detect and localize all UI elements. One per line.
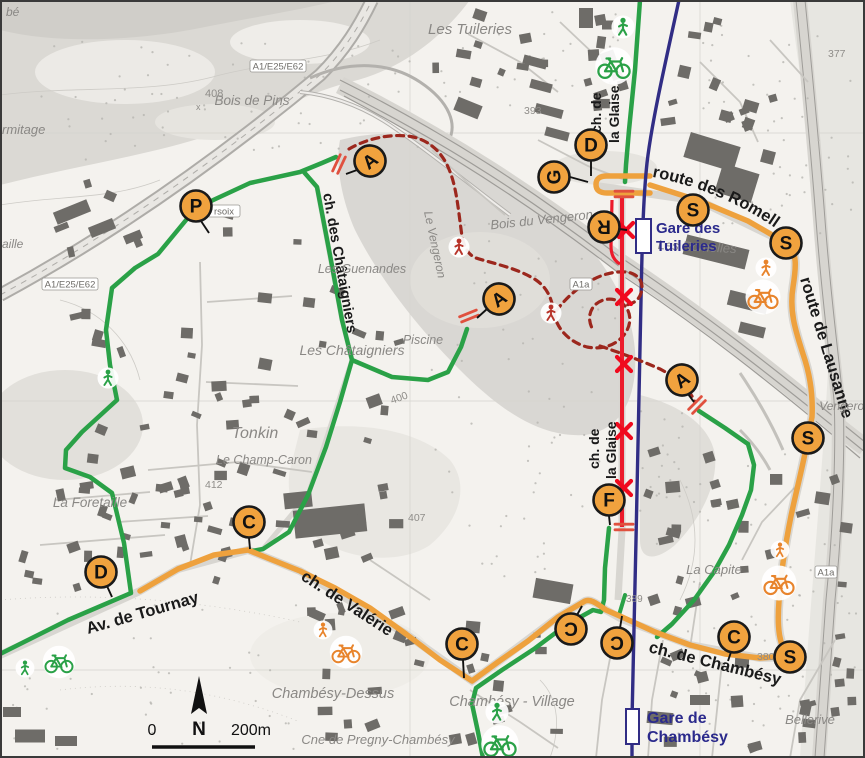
tree-dot xyxy=(705,692,707,694)
tree-dot xyxy=(503,575,505,577)
tree-dot xyxy=(543,57,545,59)
pedestrian-icon xyxy=(756,258,777,279)
tree-dot xyxy=(562,50,564,52)
building xyxy=(594,14,607,26)
tree-dot xyxy=(850,209,852,211)
tree-dot xyxy=(693,581,695,583)
tree-dot xyxy=(597,308,599,310)
tree-dot xyxy=(849,80,851,82)
tree-dot xyxy=(56,748,58,750)
tree-dot xyxy=(497,86,499,88)
tree-dot xyxy=(163,134,165,136)
tree-dot xyxy=(167,64,169,66)
building xyxy=(550,729,563,734)
map-image: route de LausanneAv. de Tournaych. de Va… xyxy=(0,0,865,758)
building xyxy=(493,680,504,692)
tree-dot xyxy=(543,33,545,35)
tree-dot xyxy=(792,605,794,607)
building xyxy=(375,331,384,341)
tree-dot xyxy=(253,149,255,151)
tree-dot xyxy=(773,120,775,122)
tree-dot xyxy=(656,543,658,545)
place-label: Cne de Pregny-Chambésy xyxy=(301,732,456,747)
pedestrian-icon xyxy=(16,659,35,678)
place-label: Bois de Pins xyxy=(214,93,289,108)
street-label: ch. de xyxy=(586,428,602,469)
tree-dot xyxy=(147,74,149,76)
tree-dot xyxy=(570,494,572,496)
tree-dot xyxy=(269,715,271,717)
elevation-label: 393 xyxy=(524,105,542,117)
tree-dot xyxy=(786,619,788,621)
tree-dot xyxy=(288,722,290,724)
tree-dot xyxy=(612,36,614,38)
tree-dot xyxy=(114,99,116,101)
tree-dot xyxy=(678,468,680,470)
tree-dot xyxy=(468,525,470,527)
tree-dot xyxy=(721,34,723,36)
tree-dot xyxy=(398,91,400,93)
tree-dot xyxy=(292,748,294,750)
tree-dot xyxy=(788,695,790,697)
elevation-label: 407 xyxy=(408,512,426,524)
route-marker-S: S xyxy=(771,228,802,259)
tree-dot xyxy=(285,722,287,724)
tree-dot xyxy=(26,688,28,690)
tree-dot xyxy=(255,700,257,702)
place-label: Vengeron xyxy=(819,399,865,413)
tree-dot xyxy=(132,116,134,118)
tree-dot xyxy=(240,42,242,44)
tree-dot xyxy=(650,486,652,488)
building xyxy=(835,679,845,688)
tree-dot xyxy=(755,499,757,501)
tree-dot xyxy=(779,708,781,710)
tree-dot xyxy=(681,426,683,428)
building xyxy=(155,484,168,493)
tree-dot xyxy=(823,642,825,644)
route-marker-letter: G xyxy=(545,170,566,185)
tree-dot xyxy=(784,453,786,455)
tree-dot xyxy=(766,94,768,96)
elevation-label: 408 xyxy=(205,88,223,100)
tree-dot xyxy=(181,743,183,745)
tree-dot xyxy=(397,55,399,57)
building xyxy=(249,395,259,403)
tree-dot xyxy=(699,511,701,513)
tree-dot xyxy=(777,696,779,698)
building xyxy=(770,474,782,485)
tree-dot xyxy=(537,422,539,424)
tree-dot xyxy=(817,139,819,141)
building xyxy=(389,519,403,528)
tree-dot xyxy=(669,479,671,481)
tree-dot xyxy=(667,453,669,455)
tree-dot xyxy=(801,116,803,118)
scale-zero-label: 0 xyxy=(148,722,157,739)
tree-dot xyxy=(763,724,765,726)
tree-dot xyxy=(91,693,93,695)
tree-dot xyxy=(451,491,453,493)
place-label: Tonkin xyxy=(232,425,279,442)
tree-dot xyxy=(509,104,511,106)
tree-dot xyxy=(828,157,830,159)
tree-dot xyxy=(699,483,701,485)
tree-dot xyxy=(203,104,205,106)
tree-dot xyxy=(544,568,546,570)
tree-dot xyxy=(257,654,259,656)
building xyxy=(665,481,680,494)
road-sign-text: rsoix xyxy=(214,207,234,218)
tree-dot xyxy=(658,493,660,495)
tree-dot xyxy=(708,102,710,104)
tree-dot xyxy=(204,108,206,110)
tree-dot xyxy=(642,467,644,469)
tree-dot xyxy=(723,101,725,103)
route-marker-S: S xyxy=(775,642,806,673)
tree-dot xyxy=(237,138,239,140)
tree-dot xyxy=(824,189,826,191)
building xyxy=(537,60,548,68)
tree-dot xyxy=(105,102,107,104)
building xyxy=(711,499,720,508)
tree-dot xyxy=(614,317,616,319)
tree-dot xyxy=(807,517,809,519)
building xyxy=(303,297,316,308)
tree-dot xyxy=(124,88,126,90)
tree-dot xyxy=(304,77,306,79)
tree-dot xyxy=(351,55,353,57)
tree-dot xyxy=(496,555,498,557)
place-label: Le Champ-Caron xyxy=(216,453,312,467)
tree-dot xyxy=(158,671,160,673)
tree-dot xyxy=(151,51,153,53)
tree-dot xyxy=(502,329,504,331)
tree-dot xyxy=(491,563,493,565)
station-label-chambesy-2: Chambésy xyxy=(647,729,728,746)
building xyxy=(55,736,77,746)
tree-dot xyxy=(188,55,190,57)
building xyxy=(847,697,856,706)
tree-dot xyxy=(219,740,221,742)
building xyxy=(257,292,272,303)
tree-dot xyxy=(110,133,112,135)
building xyxy=(163,391,174,399)
tree-dot xyxy=(248,652,250,654)
tree-dot xyxy=(788,44,790,46)
tree-dot xyxy=(710,60,712,62)
tree-dot xyxy=(481,563,483,565)
bicycle-icon xyxy=(746,280,781,315)
tree-dot xyxy=(485,281,487,283)
building xyxy=(379,491,387,500)
tree-dot xyxy=(781,117,783,119)
tree-dot xyxy=(537,556,539,558)
tree-dot xyxy=(755,624,757,626)
building xyxy=(344,719,353,728)
pedestrian-icon xyxy=(541,303,562,324)
tree-dot xyxy=(392,50,394,52)
tree-dot xyxy=(70,678,72,680)
tree-dot xyxy=(505,515,507,517)
tree-dot xyxy=(831,137,833,139)
building xyxy=(690,695,710,705)
elevation-label: x xyxy=(196,102,201,112)
tree-dot xyxy=(543,542,545,544)
route-marker-S: S xyxy=(793,423,824,454)
route-marker-letter: S xyxy=(780,234,793,255)
tree-dot xyxy=(150,703,152,705)
tree-dot xyxy=(551,442,553,444)
building xyxy=(3,707,21,717)
place-label: La Capite xyxy=(686,562,742,577)
tree-dot xyxy=(711,44,713,46)
station-rect-tuileries xyxy=(636,219,651,253)
building xyxy=(307,430,318,438)
tree-dot xyxy=(786,193,788,195)
tree-dot xyxy=(508,358,510,360)
tree-dot xyxy=(150,637,152,639)
tree-dot xyxy=(731,222,733,224)
tree-dot xyxy=(581,258,583,260)
tree-dot xyxy=(803,191,805,193)
tree-dot xyxy=(81,41,83,43)
building xyxy=(731,695,744,707)
tree-dot xyxy=(484,272,486,274)
tree-dot xyxy=(748,55,750,57)
tree-dot xyxy=(488,240,490,242)
tree-dot xyxy=(458,396,460,398)
tree-dot xyxy=(417,146,419,148)
building xyxy=(322,669,330,680)
tree-dot xyxy=(781,205,783,207)
tree-dot xyxy=(367,83,369,85)
tree-dot xyxy=(702,42,704,44)
tree-dot xyxy=(747,465,749,467)
tree-dot xyxy=(581,505,583,507)
tree-dot xyxy=(848,612,850,614)
tree-dot xyxy=(264,43,266,45)
tree-dot xyxy=(269,669,271,671)
tree-dot xyxy=(779,166,781,168)
tree-dot xyxy=(357,45,359,47)
tree-dot xyxy=(563,406,565,408)
place-label: Les Guenandes xyxy=(318,262,406,276)
tree-dot xyxy=(559,434,561,436)
elevation-label: 412 xyxy=(205,479,223,491)
tree-dot xyxy=(145,714,147,716)
tree-dot xyxy=(735,542,737,544)
tree-dot xyxy=(767,129,769,131)
tree-dot xyxy=(359,122,361,124)
tree-dot xyxy=(687,630,689,632)
building xyxy=(318,707,333,716)
tree-dot xyxy=(824,543,826,545)
tree-dot xyxy=(819,232,821,234)
building xyxy=(798,732,806,743)
tree-dot xyxy=(685,486,687,488)
tree-dot xyxy=(847,155,849,157)
building xyxy=(579,8,593,28)
route-marker-letter: C xyxy=(610,632,624,653)
building xyxy=(87,453,99,463)
pedestrian-icon xyxy=(314,621,333,640)
tree-dot xyxy=(40,95,42,97)
elevation-label: 389 xyxy=(626,594,643,605)
tree-dot xyxy=(678,437,680,439)
map-screenshot: route de LausanneAv. de Tournaych. de Va… xyxy=(0,0,865,758)
tree-dot xyxy=(75,96,77,98)
tree-dot xyxy=(295,604,297,606)
route-marker-letter: F xyxy=(603,491,615,512)
tree-dot xyxy=(300,112,302,114)
street-label: la Glaise xyxy=(603,421,619,479)
place-label: Bellerive xyxy=(785,712,835,727)
tree-dot xyxy=(309,123,311,125)
tree-dot xyxy=(409,60,411,62)
tree-dot xyxy=(534,275,536,277)
route-marker-S: S xyxy=(678,195,709,226)
tree-dot xyxy=(707,519,709,521)
route-marker-letter: D xyxy=(584,136,598,157)
tree-dot xyxy=(764,640,766,642)
place-label: Piscine xyxy=(403,333,443,347)
tree-dot xyxy=(750,524,752,526)
route-marker-letter: S xyxy=(802,429,815,450)
building xyxy=(223,227,233,236)
tree-dot xyxy=(527,460,529,462)
tree-dot xyxy=(394,72,396,74)
tree-dot xyxy=(539,472,541,474)
tree-dot xyxy=(722,222,724,224)
tree-dot xyxy=(764,503,766,505)
tree-dot xyxy=(569,43,571,45)
route-marker-letter: C xyxy=(727,628,741,649)
tree-dot xyxy=(854,666,856,668)
tree-dot xyxy=(782,61,784,63)
place-label: aille xyxy=(2,237,24,251)
tree-dot xyxy=(338,148,340,150)
tree-dot xyxy=(597,283,599,285)
tree-dot xyxy=(532,338,534,340)
tree-dot xyxy=(783,139,785,141)
building xyxy=(839,522,852,534)
tree-dot xyxy=(134,145,136,147)
tree-dot xyxy=(534,571,536,573)
tree-dot xyxy=(591,391,593,393)
tree-dot xyxy=(662,444,664,446)
tree-dot xyxy=(600,258,602,260)
building xyxy=(293,239,301,245)
tree-dot xyxy=(679,495,681,497)
tree-dot xyxy=(779,80,781,82)
road-sign-text: A1/E25/E62 xyxy=(253,62,304,73)
tree-dot xyxy=(224,136,226,138)
tree-dot xyxy=(727,684,729,686)
tree-dot xyxy=(448,471,450,473)
road-sign-text: A1a xyxy=(818,568,836,579)
place-label: Chambésy-Dessus xyxy=(272,686,395,702)
road-sign-text: A1/E25/E62 xyxy=(45,280,96,291)
station-label-chambesy-1: Gare de xyxy=(647,710,707,727)
tree-dot xyxy=(271,147,273,149)
tree-dot xyxy=(249,672,251,674)
route-marker-letter: C xyxy=(455,635,469,656)
building xyxy=(432,63,439,74)
tree-dot xyxy=(307,61,309,63)
route-marker-letter: C xyxy=(564,618,578,639)
tree-dot xyxy=(523,518,525,520)
route-marker-letter: S xyxy=(687,201,700,222)
tree-dot xyxy=(672,671,674,673)
tree-dot xyxy=(500,525,502,527)
tree-dot xyxy=(773,173,775,175)
tree-dot xyxy=(298,122,300,124)
tree-dot xyxy=(250,111,252,113)
tree-dot xyxy=(789,174,791,176)
tree-dot xyxy=(713,627,715,629)
tree-dot xyxy=(562,363,564,365)
tree-dot xyxy=(709,723,711,725)
tree-dot xyxy=(12,704,14,706)
tree-dot xyxy=(715,699,717,701)
tree-dot xyxy=(514,78,516,80)
tree-dot xyxy=(555,260,557,262)
building xyxy=(194,516,203,522)
tree-dot xyxy=(816,35,818,37)
tree-dot xyxy=(24,685,26,687)
building xyxy=(671,524,681,532)
tree-dot xyxy=(708,79,710,81)
tree-dot xyxy=(801,176,803,178)
place-label: Les Tuileries xyxy=(428,21,512,38)
tree-dot xyxy=(571,85,573,87)
scale-distance-label: 200m xyxy=(231,722,271,739)
street-label: ch. de xyxy=(588,92,604,133)
tree-dot xyxy=(140,687,142,689)
tree-dot xyxy=(368,96,370,98)
tree-dot xyxy=(750,616,752,618)
tree-dot xyxy=(551,11,553,13)
tree-dot xyxy=(162,126,164,128)
tree-dot xyxy=(176,97,178,99)
tree-dot xyxy=(57,613,59,615)
tree-dot xyxy=(538,258,540,260)
tree-dot xyxy=(101,118,103,120)
tree-dot xyxy=(160,93,162,95)
tree-dot xyxy=(812,590,814,592)
tree-dot xyxy=(837,602,839,604)
tree-dot xyxy=(459,91,461,93)
street-label: la Glaise xyxy=(606,85,622,143)
tree-dot xyxy=(85,158,87,160)
tree-dot xyxy=(688,690,690,692)
tree-dot xyxy=(699,583,701,585)
building xyxy=(596,36,606,49)
tree-dot xyxy=(555,79,557,81)
building xyxy=(846,668,854,678)
tree-dot xyxy=(445,95,447,97)
tree-dot xyxy=(583,434,585,436)
building xyxy=(276,520,290,528)
pedestrian-icon xyxy=(449,237,470,258)
bicycle-icon xyxy=(43,646,76,679)
route-marker-letter: R xyxy=(597,216,611,237)
building xyxy=(15,730,45,743)
pedestrian-icon xyxy=(98,368,119,389)
place-label: La Foretaille xyxy=(53,495,127,510)
tree-dot xyxy=(753,703,755,705)
